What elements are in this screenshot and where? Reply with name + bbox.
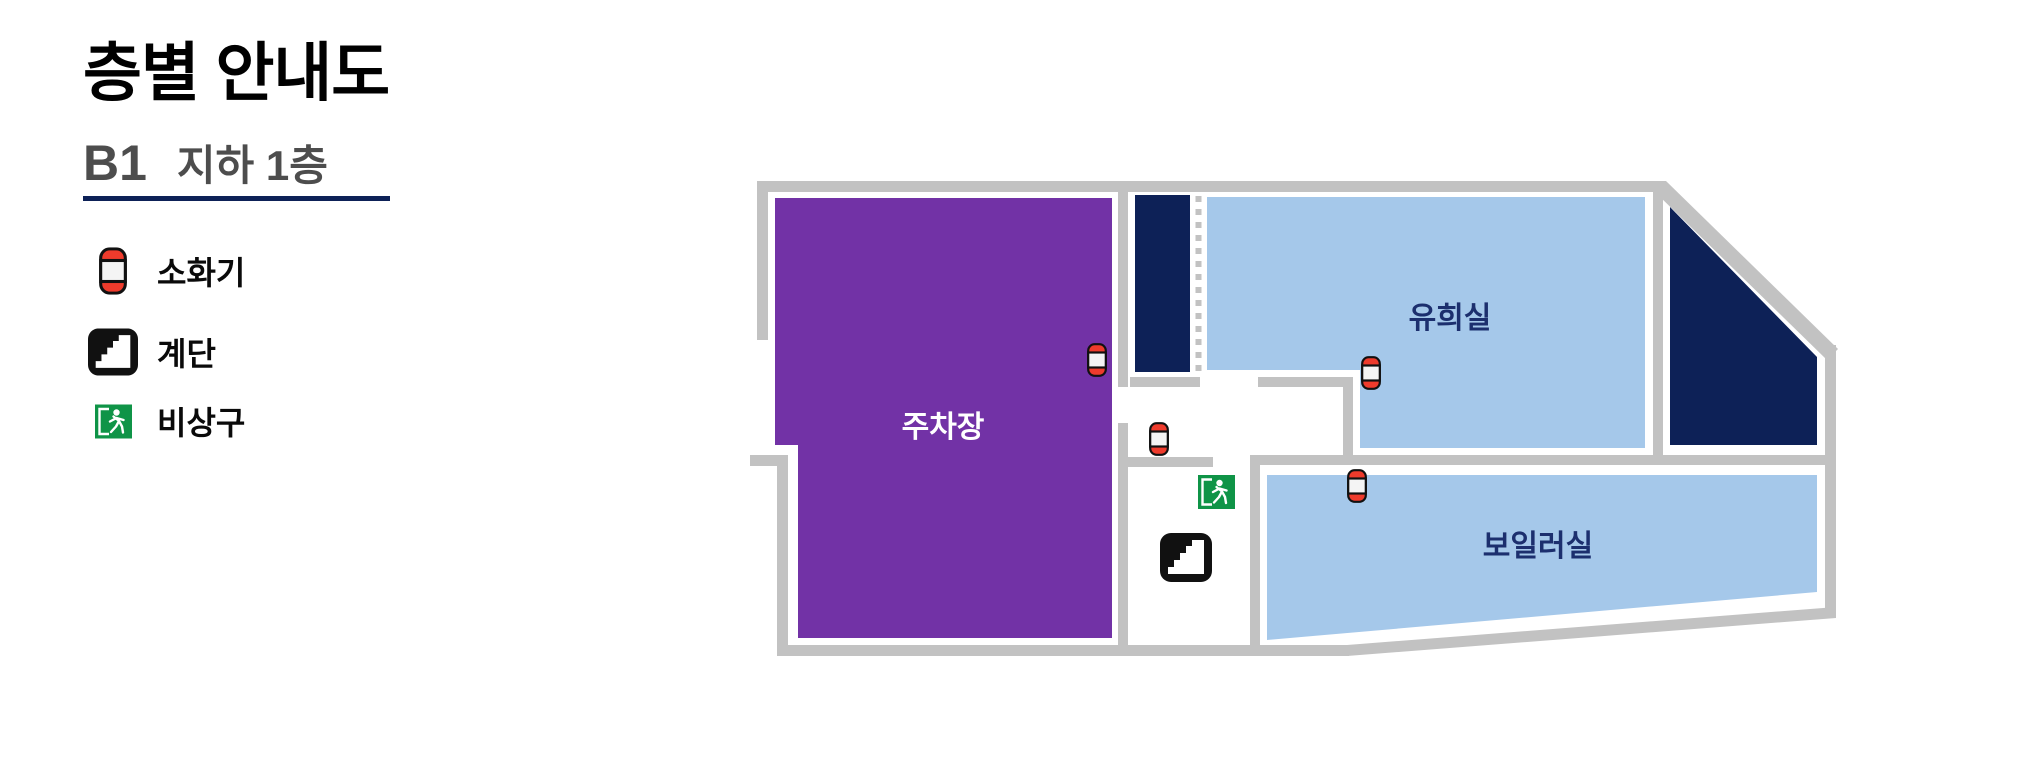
floor-map: 주차장 유희실 보일러실 [0, 0, 2033, 784]
fire-extinguisher-icon [1088, 344, 1106, 376]
wall-below-playroom [1258, 377, 1353, 387]
stairwell-block [1135, 195, 1190, 372]
wall-corridor-left [1118, 423, 1128, 650]
fire-extinguisher-icon [1150, 423, 1168, 455]
fire-extinguisher-icon [1348, 470, 1366, 502]
fire-extinguisher-icon [1362, 357, 1380, 389]
wall-top [757, 181, 1666, 192]
wall-left-lower [777, 455, 788, 656]
room-label-playroom: 유희실 [1409, 302, 1492, 335]
emergency-exit-icon [1198, 475, 1235, 509]
wall-right [1825, 345, 1836, 613]
wall-playroom-right [1653, 181, 1663, 465]
stairs-icon [1160, 533, 1212, 582]
wall-bottom [777, 645, 1349, 656]
wall-playroom-extension [1343, 387, 1353, 455]
wall-corridor-top [1128, 457, 1213, 467]
wall-boiler-top [1257, 455, 1825, 465]
room-label-parking: 주차장 [902, 411, 985, 444]
floor-guide-page: 층별 안내도 B1 지하 1층 소화기 계단 비상구 [0, 0, 2033, 784]
wall-left-upper [757, 181, 768, 340]
wall-parking-right [1118, 192, 1128, 387]
room-label-boiler: 보일러실 [1483, 530, 1593, 563]
wall-below-stairwell [1130, 377, 1200, 387]
wall-corridor-right [1250, 455, 1260, 650]
